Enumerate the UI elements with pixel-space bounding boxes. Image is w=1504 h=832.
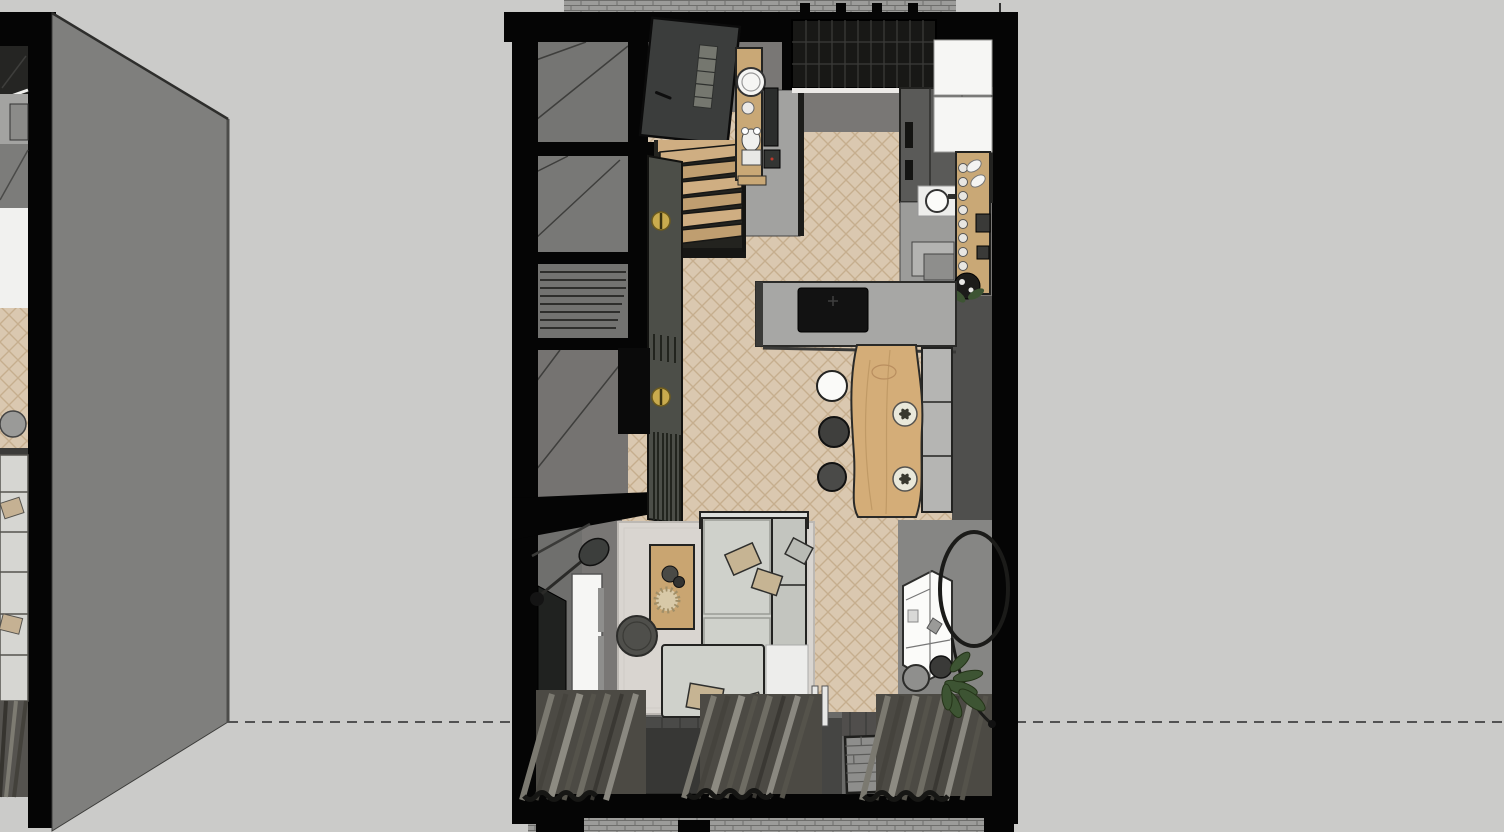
perspective-wall[interactable] xyxy=(52,13,228,831)
adjacent-skylight xyxy=(0,46,28,94)
adjacent-lamp xyxy=(0,411,26,437)
dining-chair-white xyxy=(817,371,847,401)
adjacent-white-unit xyxy=(0,208,28,308)
tv-cabinet[interactable] xyxy=(572,574,602,700)
window-dressing xyxy=(522,686,992,800)
espresso-machine xyxy=(976,214,990,232)
cup xyxy=(742,102,754,114)
curtains-middle[interactable] xyxy=(684,694,822,798)
roof-brick-strip-bottom xyxy=(528,816,1012,832)
mirror xyxy=(764,88,778,146)
shadow-zone xyxy=(952,296,992,520)
roof-brick-strip-top xyxy=(564,0,956,13)
main-plan[interactable] xyxy=(504,0,1018,832)
vanity-sink xyxy=(737,68,765,96)
dried-grass-decor xyxy=(656,589,678,611)
floorplan-render xyxy=(0,0,1504,832)
adjacent-plan-copy[interactable] xyxy=(0,12,56,828)
dining-chair-dark-2 xyxy=(818,463,846,491)
tick-mark xyxy=(999,3,1001,12)
cooktop xyxy=(798,288,868,332)
curtains-left[interactable] xyxy=(522,690,646,800)
plant-pot xyxy=(930,656,952,678)
kitchen-sink xyxy=(926,190,948,212)
wardrobe-side-panel xyxy=(618,348,650,434)
entry-door[interactable] xyxy=(640,18,740,145)
curtains-right[interactable] xyxy=(862,694,992,800)
coffee-table[interactable] xyxy=(650,545,694,629)
skylight[interactable] xyxy=(792,20,936,93)
fridge-top xyxy=(934,40,992,95)
adjacent-curtains xyxy=(0,701,28,797)
stool[interactable] xyxy=(903,665,929,691)
dining-chair-dark xyxy=(819,417,849,447)
dining-bench xyxy=(922,348,952,512)
model-viewport[interactable] xyxy=(0,0,1504,832)
adjacent-counter xyxy=(10,104,28,140)
adjacent-sofa xyxy=(0,455,28,701)
